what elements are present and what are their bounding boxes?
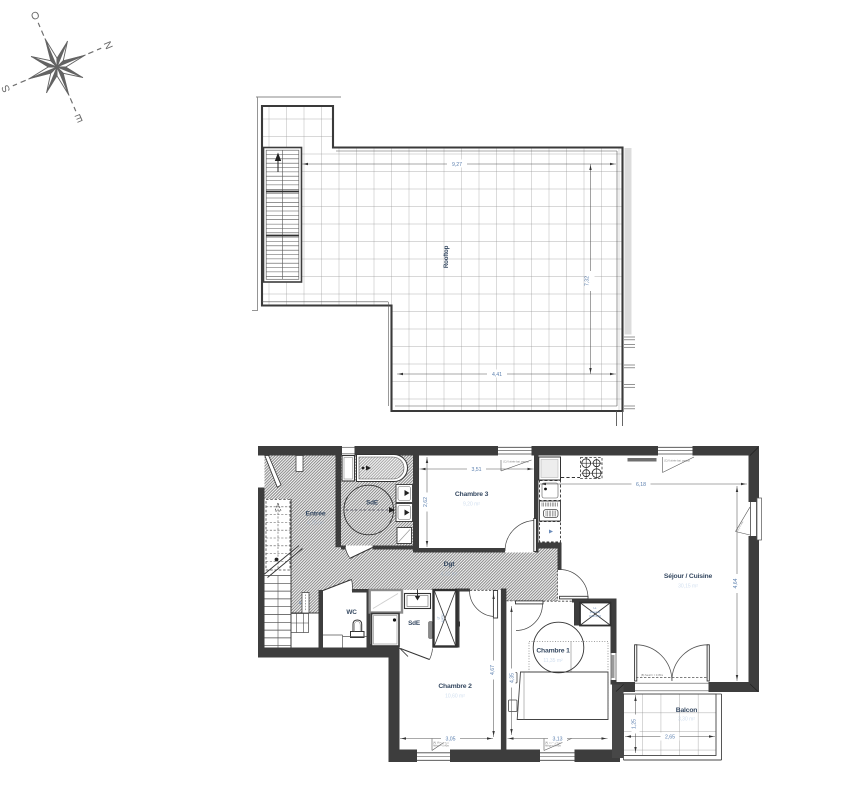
svg-text:Dgt: Dgt — [444, 561, 456, 568]
svg-text:9,27: 9,27 — [452, 162, 462, 168]
svg-text:7,32: 7,32 — [585, 276, 591, 286]
svg-text:4,35: 4,35 — [510, 673, 516, 683]
svg-text:Entrée: Entrée — [306, 511, 326, 518]
svg-text:LT: LT — [437, 616, 441, 619]
svg-text:2,65: 2,65 — [665, 734, 675, 740]
svg-text:4,10 m²: 4,10 m² — [441, 572, 458, 578]
svg-text:3,30 m²: 3,30 m² — [678, 717, 695, 723]
svg-text:3,51: 3,51 — [471, 467, 481, 473]
svg-text:(réservé): (réservé) — [590, 610, 601, 614]
svg-text:Rooftop: Rooftop — [443, 245, 450, 268]
svg-text:SdE: SdE — [408, 620, 421, 627]
svg-text:0,60×0,60: 0,60×0,60 — [589, 614, 601, 618]
svg-text:(B) Seuil h = 0,05m: (B) Seuil h = 0,05m — [641, 673, 663, 677]
svg-text:4,75 m²: 4,75 m² — [307, 521, 324, 527]
svg-text:6,18: 6,18 — [636, 482, 646, 488]
svg-text:30,15 m²: 30,15 m² — [678, 584, 698, 590]
svg-text:4,41: 4,41 — [492, 372, 502, 378]
svg-text:1,25: 1,25 — [632, 719, 638, 729]
svg-text:4,64: 4,64 — [733, 578, 739, 588]
svg-text:10,60 m²: 10,60 m² — [445, 694, 465, 700]
svg-text:WC: WC — [346, 609, 357, 616]
svg-text:11,35 m²: 11,35 m² — [543, 658, 563, 664]
svg-text:2,62: 2,62 — [423, 497, 429, 507]
svg-text:Chambre 2: Chambre 2 — [438, 683, 472, 690]
svg-text:Balcon: Balcon — [676, 707, 698, 714]
svg-text:Séjour / Cuisine: Séjour / Cuisine — [664, 573, 713, 580]
svg-text:SdE: SdE — [366, 500, 379, 507]
svg-text:EP: EP — [298, 601, 302, 605]
svg-text:4,67: 4,67 — [490, 665, 496, 675]
svg-text:Chambre 1: Chambre 1 — [536, 648, 570, 655]
svg-text:3,05: 3,05 — [445, 736, 455, 742]
svg-text:(C) V.vitrée bat. partout: (C) V.vitrée bat. partout — [503, 461, 529, 464]
svg-text:(LV/SL): (LV/SL) — [441, 614, 445, 623]
svg-text:3,13: 3,13 — [552, 736, 562, 742]
svg-text:(C) V.vitrée bat. partout: (C) V.vitrée bat. partout — [664, 460, 690, 463]
svg-text:Allège = 0,40m: Allège = 0,40m — [433, 745, 449, 748]
svg-text:Allège = 0,40m: Allège = 0,40m — [545, 745, 561, 748]
svg-text:Chambre 3: Chambre 3 — [455, 491, 489, 498]
svg-text:9,20 m²: 9,20 m² — [463, 502, 480, 508]
